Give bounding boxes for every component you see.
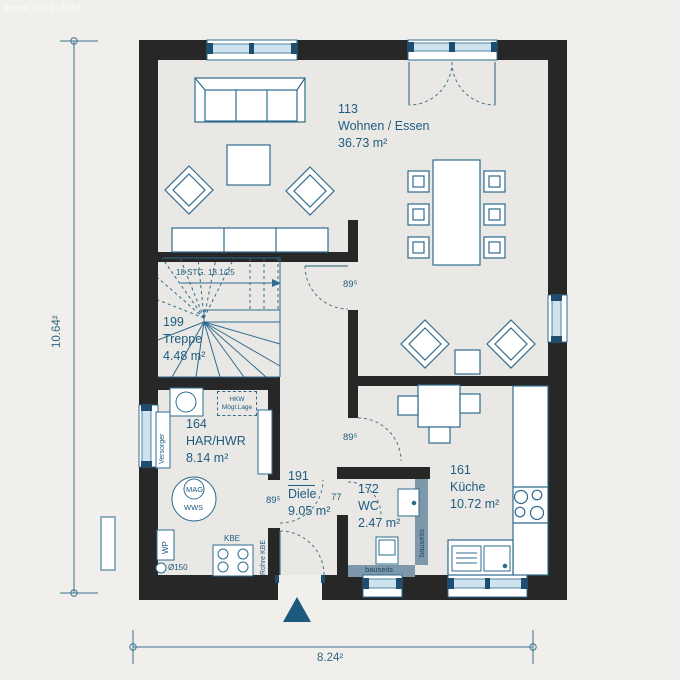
room-label-kueche: 161 Küche 10.72 m² (450, 462, 499, 513)
room-label-har: 164 HAR/HWR 8.14 m² (186, 416, 246, 467)
kitchen-sink (484, 546, 510, 571)
durchmesser-label: Ø150 (168, 563, 188, 572)
washing-machine (170, 388, 203, 416)
room-name: Diele (288, 486, 330, 503)
kbe-label: KBE (224, 534, 240, 543)
bauseits-label-right: bauseits (417, 529, 426, 557)
dimension-width: 8.24² (317, 652, 343, 664)
window-left-har (139, 405, 158, 467)
room-name: HAR/HWR (186, 433, 246, 450)
room-label-wohnen: 113 Wohnen / Essen 36.73 m² (338, 101, 430, 152)
wc-basin (398, 489, 419, 516)
room-label-wc: 172 WC 2.47 m² (358, 481, 400, 532)
room-area: 8.14 m² (186, 450, 246, 467)
room-number: 164 (186, 416, 246, 433)
window-right-dining (548, 295, 567, 342)
door-width-har: 89⁵ (266, 495, 281, 506)
watermark: www.allkauf.de (4, 2, 81, 14)
window-bottom-wc (363, 575, 402, 597)
room-number: 172 (358, 481, 400, 498)
exterior-column (101, 517, 115, 570)
room-number: 161 (450, 462, 499, 479)
window-bottom-kitchen (448, 575, 527, 597)
window-top-living (207, 40, 297, 60)
pipe-150-icon (156, 563, 166, 573)
kitchen-counter-right (513, 386, 548, 575)
entrance-marker (283, 597, 311, 622)
versorger-label: Versorger (159, 434, 166, 464)
mag-label: MAG (186, 485, 203, 494)
dimension-height: 10.64² (51, 315, 63, 348)
room-area: 36.73 m² (338, 135, 430, 152)
hkw-line2: Mögl.Lage (222, 404, 252, 411)
room-area: 10.72 m² (450, 496, 499, 513)
room-name: Treppe (163, 331, 205, 348)
bauseits-label-bottom: bauseits (365, 565, 393, 574)
wp-label: WP (161, 541, 170, 554)
room-area: 9.05 m² (288, 503, 330, 520)
stairs-annotation: 18 STG. 18.1/25 (176, 268, 235, 277)
side-table (455, 350, 480, 374)
hkw-placeholder: HKW Mögl.Lage (217, 391, 257, 416)
floor-plan: www.allkauf.de 113 Wohnen / Essen 36.73 … (0, 0, 680, 680)
hkw-line1: HKW (229, 396, 244, 403)
room-name: Wohnen / Essen (338, 118, 430, 135)
room-label-diele: 191 Diele 9.05 m² (288, 468, 330, 520)
kbe-manifold (213, 545, 253, 576)
room-area: 4.48 m² (163, 348, 205, 365)
dining-table (433, 160, 480, 265)
room-label-treppe: 199 Treppe 4.48 m² (163, 314, 205, 365)
sideboard (172, 228, 328, 252)
room-number: 113 (338, 101, 430, 118)
room-number: 199 (163, 314, 205, 331)
door-width-kueche: 89⁵ (343, 432, 358, 443)
boiler-mag-wws (172, 477, 216, 521)
room-area: 2.47 m² (358, 515, 400, 532)
har-cabinet (258, 410, 272, 474)
coffee-table (227, 145, 270, 185)
room-name: Küche (450, 479, 499, 496)
room-number: 191 (288, 468, 315, 486)
wws-label: WWS (184, 503, 203, 512)
door-width-essen-hall: 89⁵ (343, 279, 358, 290)
door-width-wc: 77 (331, 492, 342, 503)
toilet (376, 537, 398, 564)
rohre-kbe-label: Rohre KBE (260, 540, 267, 575)
room-name: WC (358, 498, 400, 515)
sofa (195, 78, 305, 122)
